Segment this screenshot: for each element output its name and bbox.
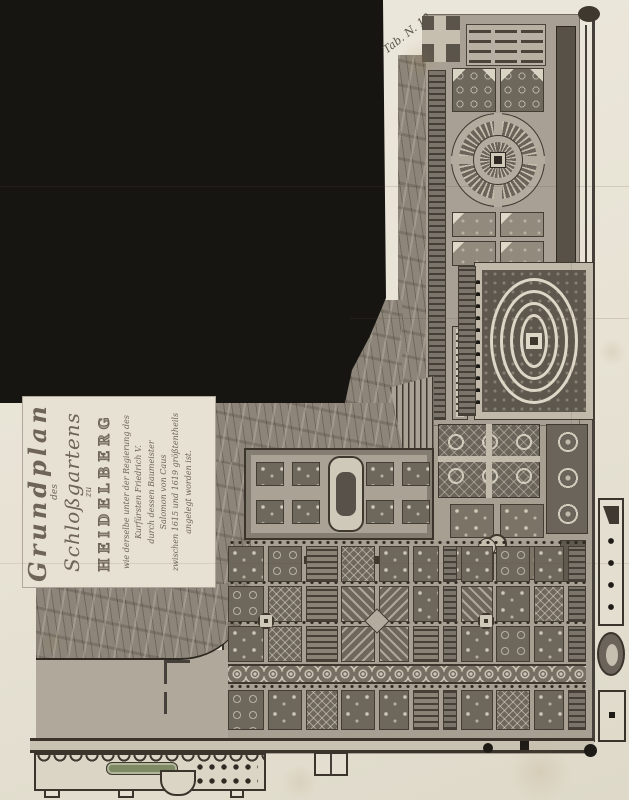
parterre-bed — [496, 626, 530, 662]
four-square-bed — [500, 504, 544, 538]
parterre-bed — [496, 690, 530, 730]
parterre-bed — [443, 690, 457, 730]
paper-fold-line — [0, 186, 629, 187]
embroidery-parterre — [452, 68, 496, 112]
octagonal-fountain — [258, 613, 274, 629]
colonnade-hall — [194, 760, 258, 786]
parterre-bed — [379, 626, 409, 662]
parterre-bed — [461, 626, 493, 662]
parterre-bed — [268, 546, 302, 582]
terrace-bed — [500, 212, 544, 237]
tree-row — [228, 541, 586, 544]
corner-tower — [578, 6, 600, 22]
grotto-gallery-building — [34, 753, 266, 791]
parterre-bed — [306, 690, 338, 730]
parterre-bed — [306, 626, 338, 662]
outbuilding-footprint — [314, 752, 348, 776]
terrace-wall-segment — [164, 662, 167, 684]
terrace-bed — [256, 462, 284, 486]
parterre-bed — [534, 626, 564, 662]
gallery-annex — [44, 789, 60, 798]
parterre-bed — [496, 546, 530, 582]
espalier-column — [521, 27, 543, 63]
oval-parterre-ticks — [476, 272, 480, 410]
parterre-bed — [461, 690, 493, 730]
retaining-wall-slab — [556, 26, 576, 268]
right-compartment — [598, 690, 626, 742]
terrace-bed — [256, 500, 284, 524]
parterre-bed — [306, 586, 338, 622]
parterre-bed — [568, 546, 586, 582]
dedication-line: Kurfürsten Friedrich V. — [133, 399, 145, 585]
gallery-annex — [118, 789, 134, 798]
right-oval-basin-center — [606, 644, 618, 666]
dedication-line: wie derselbe unter der Regierung des — [121, 399, 133, 585]
parterre-bed — [228, 626, 264, 662]
title-word-zu: zu — [84, 399, 95, 585]
wall-bastion — [520, 741, 529, 750]
parterre-bed — [443, 626, 457, 662]
parterre-bed — [379, 690, 409, 730]
paper-fold-line — [350, 318, 629, 319]
parterre-bed — [413, 546, 439, 582]
tree-row — [228, 685, 586, 688]
parterre-bed — [341, 626, 375, 662]
terrace-bed — [292, 462, 320, 486]
parterre-bed — [534, 546, 564, 582]
dedication-line: Salomon von Caus — [158, 399, 170, 585]
parterre-bed — [568, 586, 586, 622]
outbuilding-partition — [330, 754, 332, 774]
terrace-bed — [292, 500, 320, 524]
parterre-bed — [341, 690, 375, 730]
engraved-garden-plan-sheet: Tab. N. 18. — [0, 0, 629, 800]
parterre-bed — [341, 546, 375, 582]
cross-plaza-path — [422, 30, 460, 44]
dedication-line: angelegt worden ist. — [183, 399, 195, 585]
ornamental-pool-basin — [336, 472, 356, 516]
parterre-bed — [413, 690, 439, 730]
right-oval-basin — [597, 632, 625, 676]
hillside-slope-band — [398, 55, 426, 405]
knot-parterre-path — [438, 456, 540, 462]
espalier-bed-block — [466, 24, 546, 66]
corner-round-tower — [584, 744, 597, 757]
parterre-bed — [379, 546, 409, 582]
espalier-column — [495, 27, 517, 63]
parterre-bed — [228, 586, 264, 622]
parterre-row — [228, 586, 586, 620]
gallery-annex — [230, 789, 244, 798]
parterre-bed — [268, 690, 302, 730]
terrace-wall-segment — [164, 660, 190, 663]
terrace-bed — [366, 500, 394, 524]
parterre-bed — [268, 586, 302, 622]
parterre-row — [228, 690, 586, 728]
paper-fold-line — [0, 563, 629, 564]
title-main: Grundplan — [25, 399, 50, 585]
circular-parterre-center-basin — [494, 156, 502, 164]
missing-dark-area — [0, 0, 390, 403]
title-city: HEIDELBERG — [95, 399, 116, 585]
parterre-row — [228, 626, 586, 660]
embroidery-parterre — [500, 68, 544, 112]
parterre-bed — [443, 546, 457, 582]
cartouche-text-block: Grundplan des Schloßgartens zu HEIDELBER… — [25, 399, 213, 585]
terrace-bed — [402, 462, 430, 486]
parterre-bed — [461, 546, 493, 582]
circle-motif-strip — [546, 424, 588, 534]
right-gallery-ramp — [603, 506, 619, 524]
parterre-bed — [534, 690, 564, 730]
right-gallery-footprint — [598, 498, 624, 626]
bottom-boundary-wall — [30, 738, 594, 753]
gallery-pavilion — [160, 770, 196, 796]
parterre-bed — [568, 626, 586, 662]
parterre-bed — [228, 546, 264, 582]
parterre-bed — [413, 586, 439, 622]
title-cartouche: Grundplan des Schloßgartens zu HEIDELBER… — [22, 396, 216, 588]
parterre-bed — [568, 690, 586, 730]
ornamental-border-band — [228, 664, 586, 684]
parterre-bed — [268, 626, 302, 662]
parterre-bed — [534, 586, 564, 622]
parterre-bed — [413, 626, 439, 662]
four-square-bed — [450, 504, 494, 538]
parterre-bed — [496, 586, 530, 622]
terrace-bed — [452, 212, 496, 237]
parterre-bed — [306, 546, 338, 582]
wall-bastion — [483, 743, 493, 753]
right-gallery-pillars — [600, 530, 622, 622]
terrace-bed — [366, 462, 394, 486]
border-bed-strip — [428, 70, 446, 420]
title-garden: Schloßgartens — [61, 399, 84, 585]
border-bed-strip — [458, 266, 476, 416]
espalier-column — [469, 27, 491, 63]
flat-terrace — [36, 650, 228, 740]
paper-fold-line — [571, 260, 572, 430]
hillside-slope-band — [36, 576, 250, 660]
dedication-line: zwischen 1615 und 1619 größtentheils — [170, 399, 182, 585]
parterre-bed — [443, 586, 457, 622]
terrace-wall-segment — [164, 692, 167, 714]
terrace-bed — [402, 500, 430, 524]
dedication-line: durch dessen Baumeister — [146, 399, 158, 585]
octagonal-fountain — [478, 613, 494, 629]
oval-center-basin — [530, 337, 538, 345]
parterre-bed — [228, 690, 264, 730]
compartment-dot — [609, 712, 615, 718]
